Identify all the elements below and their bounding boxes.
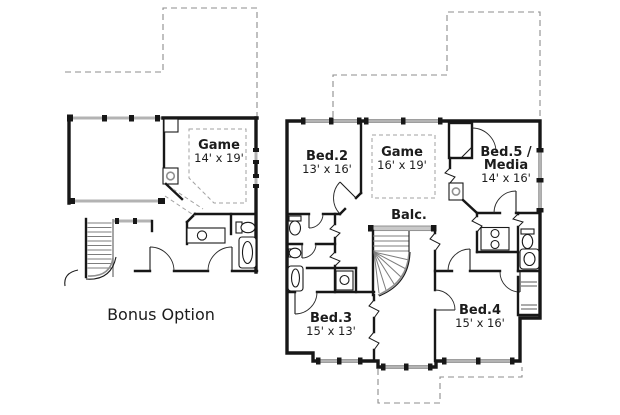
main-roof-outline	[333, 12, 540, 403]
floor-plan-sheet: Game 14' x 19' Bonus Option	[0, 0, 620, 415]
main-plan: Bed.2 13' x 16' Game 16' x 19' Bed.5 / M…	[287, 12, 544, 403]
room-dims-bonus-game: 14' x 19'	[194, 151, 244, 165]
room-dims-bed5: 14' x 16'	[481, 171, 531, 185]
floor-plan-canvas: Game 14' x 19' Bonus Option	[0, 0, 620, 415]
room-dims-main-game: 16' x 19'	[377, 158, 427, 172]
room-dims-bed4: 15' x 16'	[455, 316, 505, 330]
main-bath-left-fixtures	[288, 216, 353, 291]
main-bath-right-walls	[472, 213, 539, 271]
bonus-plan-caption: Bonus Option	[107, 305, 215, 324]
bonus-roof-outline	[65, 8, 257, 116]
main-balcony-stairs	[368, 225, 437, 296]
room-label-balcony: Balc.	[391, 208, 427, 223]
room-dims-bed3: 15' x 13'	[306, 324, 356, 338]
bonus-bath-fixtures	[187, 222, 256, 268]
room-dims-bed2: 13' x 16'	[302, 162, 352, 176]
bonus-stairs	[65, 219, 116, 286]
bonus-plan: Game 14' x 19' Bonus Option	[65, 8, 259, 324]
